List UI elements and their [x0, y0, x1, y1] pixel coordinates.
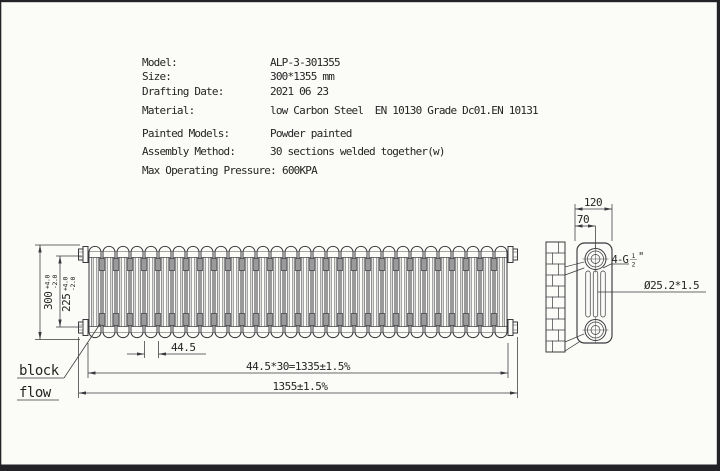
section-nipple-top	[309, 259, 314, 271]
spec-label-painted: Painted Models:	[142, 128, 229, 139]
thread-denominator: 2	[632, 261, 636, 269]
dim-height-tol-minus: -2.0	[51, 274, 59, 289]
section-nipple-top	[323, 259, 328, 271]
radiator-section	[393, 246, 409, 337]
section-nipple-top	[267, 259, 272, 271]
radiator-section	[225, 246, 241, 337]
section-nipple-bottom	[211, 314, 216, 326]
spec-value-pressure: 600KPA	[282, 165, 317, 176]
section-nipple-top	[113, 259, 118, 271]
radiator-front-view: 300 +4.0 -2.0 225 +4.0 -2.0	[17, 245, 518, 401]
section-nipple-top	[421, 259, 426, 271]
dim-sections-total-value: 44.5*30=1335±1.5%	[246, 360, 351, 373]
section-nipple-bottom	[449, 314, 454, 326]
spec-label-size: Size:	[142, 71, 171, 82]
section-nipple-top	[253, 259, 258, 271]
spec-value-painted: Powder painted	[270, 128, 352, 139]
dimension-sections-total-1335: 44.5*30=1335±1.5%	[88, 343, 508, 378]
section-nipple-bottom	[253, 314, 258, 326]
dim-wall-to-center-value: 70	[577, 213, 589, 226]
radiator-section	[183, 246, 199, 337]
section-nipple-top	[365, 259, 370, 271]
radiator-section	[435, 246, 451, 337]
section-nipple-bottom	[267, 314, 272, 326]
radiator-section	[379, 246, 395, 337]
spec-table: Model: ALP-3-301355 Size: 300*1355 mm Dr…	[0, 0, 720, 200]
radiator-section	[365, 246, 381, 337]
bushing-top-left	[79, 247, 89, 263]
section-nipple-top	[407, 259, 412, 271]
spec-value-assembly: 30 sections welded together(w)	[270, 146, 445, 157]
section-nipple-top	[141, 259, 146, 271]
tapping-boss-top	[583, 246, 609, 273]
block-flow-leader	[64, 324, 100, 378]
section-nipple-top	[351, 259, 356, 271]
section-nipple-top	[477, 259, 482, 271]
block-flow-line2: flow	[19, 385, 52, 401]
section-nipple-bottom	[435, 314, 440, 326]
radiator-section	[407, 246, 423, 337]
spec-value-size: 300*1355 mm	[270, 71, 334, 82]
section-nipple-top	[435, 259, 440, 271]
section-nipple-top	[463, 259, 468, 271]
section-nipple-top	[337, 259, 342, 271]
tapping-boss-bottom	[583, 317, 609, 344]
section-nipple-bottom	[379, 314, 384, 326]
section-nipple-bottom	[393, 314, 398, 326]
section-nipple-bottom	[295, 314, 300, 326]
radiator-section	[239, 246, 255, 337]
section-nipple-bottom	[337, 314, 342, 326]
radiator-section	[295, 246, 311, 337]
radiator-section	[99, 246, 115, 337]
section-nipple-bottom	[407, 314, 412, 326]
radiator-section	[197, 246, 213, 337]
section-nipple-bottom	[197, 314, 202, 326]
radiator-section	[477, 246, 493, 337]
page-border-bottom	[0, 465, 720, 471]
radiator-side-view: 120 70 4-G 1 2 " Ø25.2*1.5	[546, 196, 706, 352]
section-nipple-bottom	[477, 314, 482, 326]
bushing-top-right	[508, 247, 518, 263]
section-nipple-bottom	[225, 314, 230, 326]
section-nipple-bottom	[141, 314, 146, 326]
section-nipple-bottom	[421, 314, 426, 326]
radiator-section	[127, 246, 143, 337]
section-nipple-bottom	[281, 314, 286, 326]
radiator-section	[267, 246, 283, 337]
thread-suffix: "	[638, 251, 644, 263]
tube-diameter-callout: Ø25.2*1.5	[598, 279, 706, 292]
radiator-section	[449, 246, 465, 337]
radiator-section	[421, 246, 437, 337]
radiator-section	[309, 246, 325, 337]
wall-brackets	[565, 262, 584, 351]
radiator-section	[253, 246, 269, 337]
section-nipple-bottom	[309, 314, 314, 326]
section-nipple-bottom	[169, 314, 174, 326]
section-nipple-top	[491, 259, 496, 271]
spec-label-model: Model:	[142, 57, 177, 68]
dimension-height-300: 300 +4.0 -2.0	[35, 245, 80, 340]
section-nipple-bottom	[491, 314, 496, 326]
radiator-sections	[88, 246, 508, 337]
section-nipple-bottom	[351, 314, 356, 326]
block-flow-line1: block	[19, 363, 60, 379]
section-nipple-top	[239, 259, 244, 271]
thread-callout: 4-G 1 2 "	[603, 251, 644, 269]
radiator-section	[113, 246, 129, 337]
column-tubes	[586, 271, 606, 317]
radiator-section	[211, 246, 227, 337]
section-nipple-top	[295, 259, 300, 271]
spec-label-date: Drafting Date:	[142, 86, 224, 97]
spec-label-pressure: Max Operating Pressure:	[142, 165, 276, 176]
spec-value-model: ALP-3-301355	[270, 57, 340, 68]
section-nipple-bottom	[365, 314, 370, 326]
drawing-sheet: 300 +4.0 -2.0 225 +4.0 -2.0	[0, 0, 720, 471]
dimension-pitch-44-5: 44.5	[127, 341, 206, 358]
section-nipple-top	[183, 259, 188, 271]
section-nipple-top	[155, 259, 160, 271]
spec-value-date: 2021 06 23	[270, 86, 328, 97]
section-nipple-bottom	[155, 314, 160, 326]
radiator-section	[323, 246, 339, 337]
section-nipple-bottom	[99, 314, 104, 326]
dim-tapping-tol-minus: -2.0	[69, 276, 77, 291]
side-body-outline	[577, 243, 612, 343]
section-nipple-bottom	[113, 314, 118, 326]
section-nipple-bottom	[239, 314, 244, 326]
radiator-section	[141, 246, 157, 337]
section-nipple-bottom	[323, 314, 328, 326]
spec-label-material: Material:	[142, 105, 194, 116]
section-nipple-bottom	[127, 314, 132, 326]
section-nipple-top	[99, 259, 104, 271]
bushing-bottom-left	[79, 320, 89, 336]
section-nipple-bottom	[463, 314, 468, 326]
dim-overall-value: 1355±1.5%	[272, 380, 328, 393]
tube-callout-value: Ø25.2*1.5	[644, 279, 699, 292]
section-nipple-top	[225, 259, 230, 271]
thread-prefix: 4-G	[612, 254, 629, 266]
radiator-section	[337, 246, 353, 337]
section-nipple-top	[393, 259, 398, 271]
radiator-section	[491, 246, 507, 337]
dim-height-value: 300	[42, 292, 55, 310]
spec-label-assembly: Assembly Method:	[142, 146, 235, 157]
dim-tapping-value: 225	[60, 294, 73, 312]
radiator-section	[169, 246, 185, 337]
section-nipple-top	[197, 259, 202, 271]
radiator-section	[155, 246, 171, 337]
spec-value-material: low Carbon Steel EN 10130 Grade Dc01.EN …	[270, 105, 538, 116]
wall-section	[546, 242, 565, 352]
dim-pitch-value: 44.5	[171, 341, 196, 354]
section-nipple-top	[169, 259, 174, 271]
section-nipple-top	[211, 259, 216, 271]
section-nipple-top	[127, 259, 132, 271]
thread-numerator: 1	[632, 252, 636, 260]
bushing-bottom-right	[508, 320, 518, 336]
section-nipple-top	[449, 259, 454, 271]
dimension-tapping-225: 225 +4.0 -2.0	[56, 256, 82, 327]
radiator-section	[463, 246, 479, 337]
radiator-section	[351, 246, 367, 337]
section-nipple-bottom	[183, 314, 188, 326]
section-nipple-top	[379, 259, 384, 271]
section-nipple-top	[281, 259, 286, 271]
radiator-section	[281, 246, 297, 337]
